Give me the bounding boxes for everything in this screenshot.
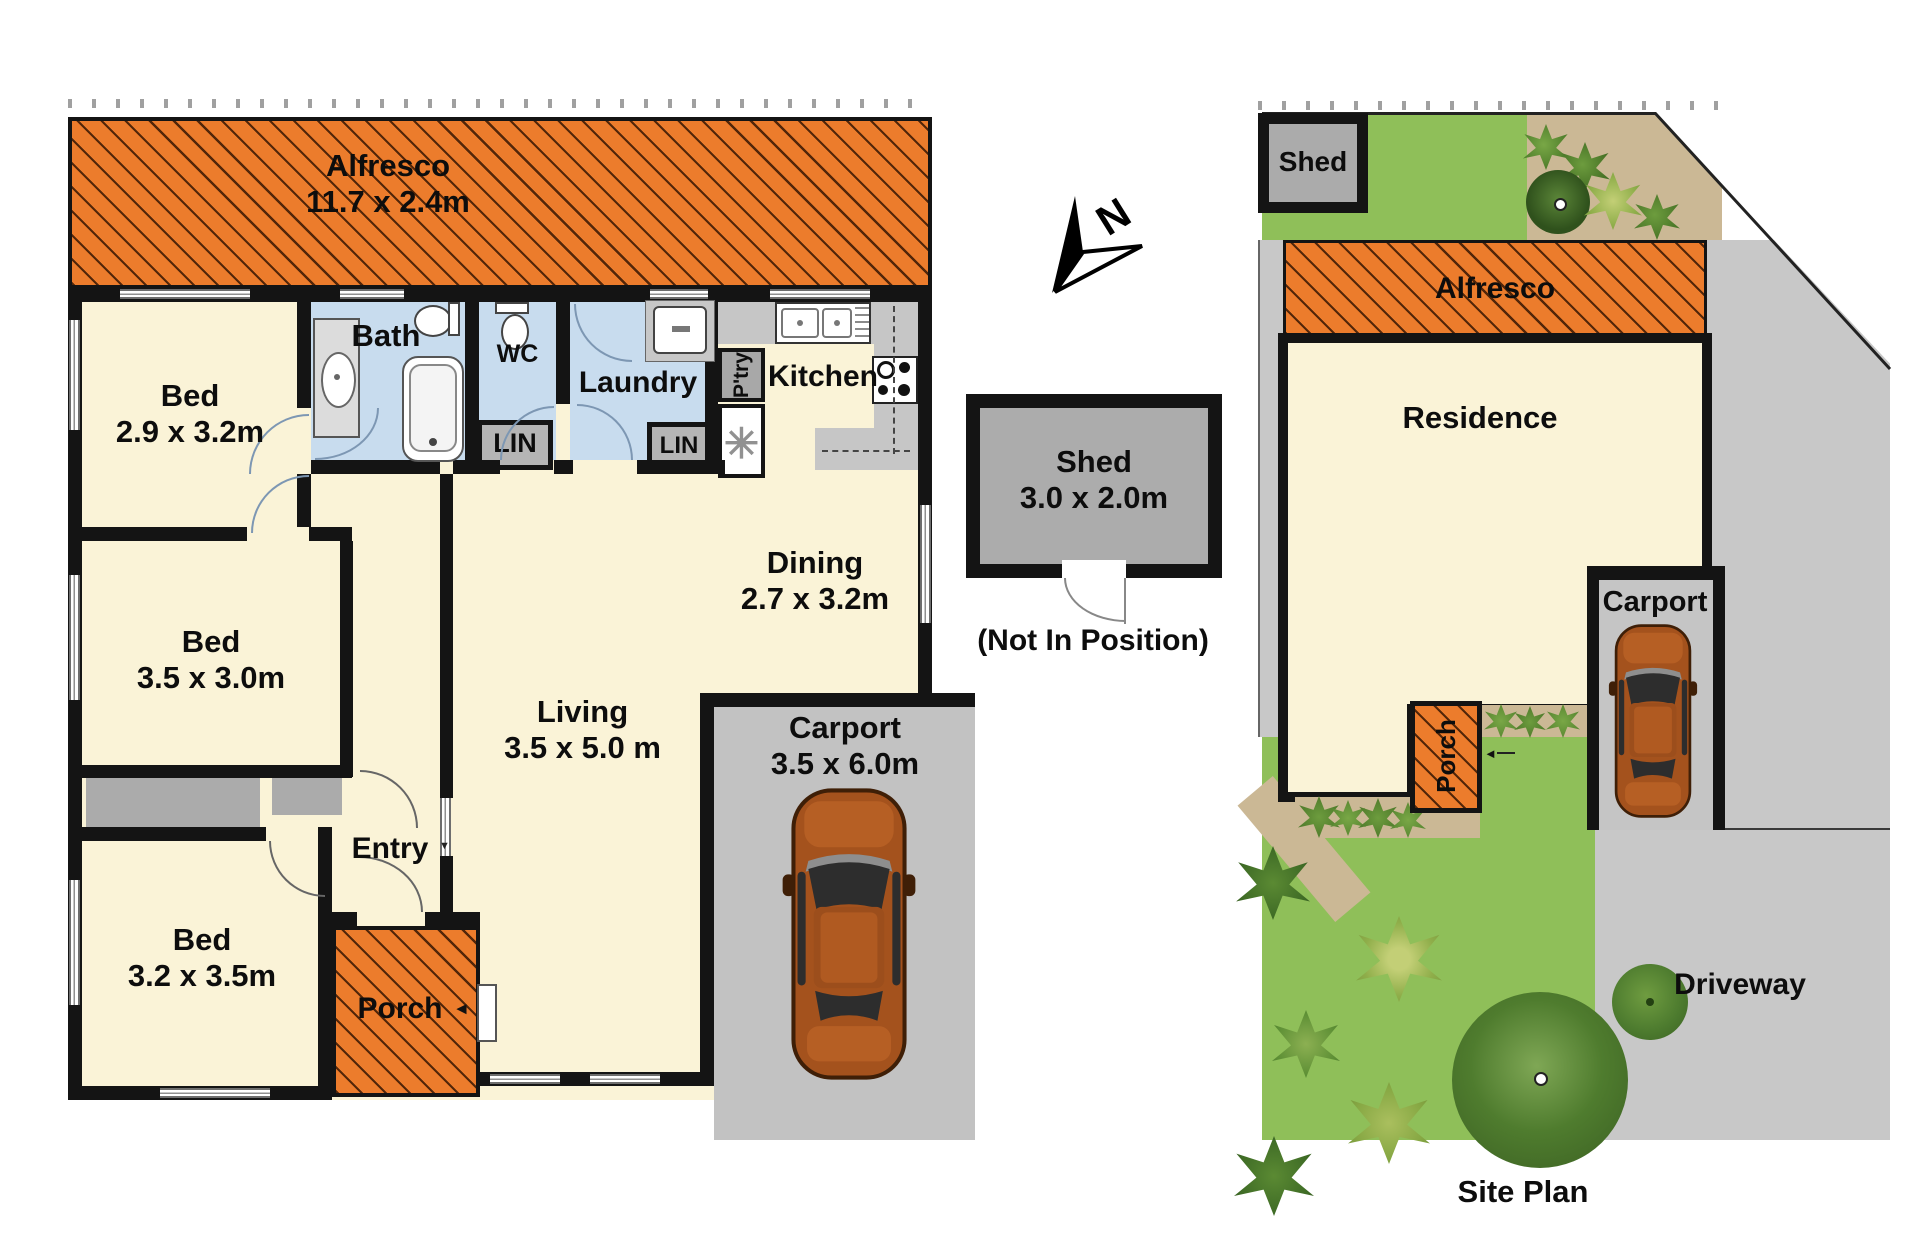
sink-drainer bbox=[855, 307, 869, 339]
room-label-porch: Porch bbox=[338, 992, 462, 1027]
site-residence-label: Residence bbox=[1345, 400, 1615, 436]
car-top-view bbox=[1608, 620, 1698, 822]
room-label-entry: Entry bbox=[330, 832, 450, 867]
closet-label: LIN bbox=[647, 432, 711, 460]
window bbox=[69, 880, 80, 1005]
toilet-tank bbox=[495, 302, 529, 314]
stove-burner bbox=[899, 362, 910, 373]
porch-arrow-icon: ◄ bbox=[453, 999, 470, 1019]
wall bbox=[340, 541, 353, 777]
room-label-dining: Dining 2.7 x 3.2m bbox=[680, 545, 950, 617]
hot-water-icon: ✳ bbox=[718, 420, 765, 469]
room-name: Bed bbox=[82, 922, 322, 958]
door-leaf bbox=[1124, 578, 1126, 624]
floorplan-page: Alfresco 11.7 x 2.4m Carport 3.5 x 6.0m bbox=[0, 0, 1920, 1256]
room-label-kitchen: Kitchen bbox=[748, 360, 898, 395]
wall bbox=[918, 288, 932, 707]
room-dims: 3.0 x 2.0m bbox=[980, 480, 1208, 516]
site-porch-label: Porch bbox=[1396, 722, 1496, 790]
wall bbox=[425, 912, 480, 926]
window bbox=[490, 1074, 560, 1084]
door-arc bbox=[1064, 578, 1126, 622]
site-driveway-label: Driveway bbox=[1610, 968, 1870, 1003]
window bbox=[69, 575, 80, 700]
site-alfresco-label: Alfresco bbox=[1345, 272, 1645, 307]
room-name: Living bbox=[455, 694, 710, 730]
room-label-wc: WC bbox=[479, 340, 556, 369]
room-name: Shed bbox=[980, 444, 1208, 480]
boundary-ticks bbox=[68, 99, 932, 108]
window bbox=[120, 289, 250, 299]
stove-burner bbox=[898, 384, 910, 396]
shed-door-gap bbox=[1062, 560, 1126, 580]
car-top-view bbox=[775, 785, 923, 1083]
room-name: Bed bbox=[82, 378, 298, 414]
wall bbox=[554, 460, 573, 474]
room-dims: 3.5 x 3.0m bbox=[82, 660, 340, 696]
site-porch-arrow-line bbox=[1497, 752, 1515, 754]
kitchen-counter bbox=[815, 428, 918, 470]
site-shed-label: Shed bbox=[1258, 146, 1368, 178]
laundry-faucet bbox=[672, 326, 690, 332]
room-dims: 3.5 x 6.0m bbox=[714, 746, 976, 782]
room-name: Alfresco bbox=[118, 148, 658, 184]
room-label-alfresco: Alfresco 11.7 x 2.4m bbox=[118, 148, 658, 220]
site-porch-arrow-icon: ◄ bbox=[1484, 746, 1497, 761]
window bbox=[770, 289, 870, 299]
window bbox=[590, 1074, 660, 1084]
room-name: Bed bbox=[82, 624, 340, 660]
room-dims: 3.2 x 3.5m bbox=[82, 958, 322, 994]
room-label-laundry: Laundry bbox=[570, 366, 706, 401]
room-label-carport: Carport 3.5 x 6.0m bbox=[714, 710, 976, 782]
room-label-bed2: Bed 3.5 x 3.0m bbox=[82, 624, 340, 696]
room-dims: 3.5 x 5.0 m bbox=[455, 730, 710, 766]
room-name: Dining bbox=[680, 545, 950, 581]
wall bbox=[465, 302, 479, 474]
room-dims: 2.7 x 3.2m bbox=[680, 581, 950, 617]
room-name: Carport bbox=[714, 710, 976, 746]
room-label-bath: Bath bbox=[316, 318, 456, 354]
wall bbox=[82, 765, 352, 778]
wall bbox=[700, 693, 975, 707]
window bbox=[160, 1088, 270, 1098]
site-carport-label: Carport bbox=[1589, 586, 1721, 620]
site-plan-title: Site Plan bbox=[1373, 1174, 1673, 1210]
window bbox=[69, 320, 80, 430]
sink-drain bbox=[834, 320, 840, 326]
window bbox=[650, 289, 708, 299]
tree-center bbox=[1554, 198, 1567, 211]
wall bbox=[82, 827, 266, 841]
wall bbox=[1587, 566, 1725, 580]
wall bbox=[332, 912, 357, 926]
sink-drain bbox=[797, 320, 803, 326]
counter-dashed-line bbox=[822, 450, 910, 452]
tree-center bbox=[1534, 1072, 1548, 1086]
wardrobe bbox=[272, 778, 342, 815]
shed-note: (Not In Position) bbox=[933, 624, 1253, 659]
bathtub-faucet bbox=[429, 438, 437, 446]
room-label-bed1: Bed 2.9 x 3.2m bbox=[82, 378, 298, 450]
wall bbox=[82, 527, 352, 541]
room-label-bed3: Bed 3.2 x 3.5m bbox=[82, 922, 322, 994]
north-arrow: N bbox=[1030, 148, 1160, 313]
shed-detail-label: Shed 3.0 x 2.0m bbox=[980, 444, 1208, 516]
window bbox=[340, 289, 404, 299]
wall bbox=[440, 474, 453, 798]
wall bbox=[556, 302, 570, 404]
room-dims: 2.9 x 3.2m bbox=[82, 414, 298, 450]
plant bbox=[1234, 1136, 1314, 1216]
room-dims: 11.7 x 2.4m bbox=[118, 184, 658, 220]
porch-step bbox=[477, 984, 497, 1042]
wardrobe bbox=[86, 778, 260, 827]
wall bbox=[311, 460, 440, 474]
room-label-living: Living 3.5 x 5.0 m bbox=[455, 694, 710, 766]
vanity-basin bbox=[321, 352, 356, 408]
basin-drain bbox=[334, 374, 340, 380]
north-label: N bbox=[1088, 189, 1139, 245]
